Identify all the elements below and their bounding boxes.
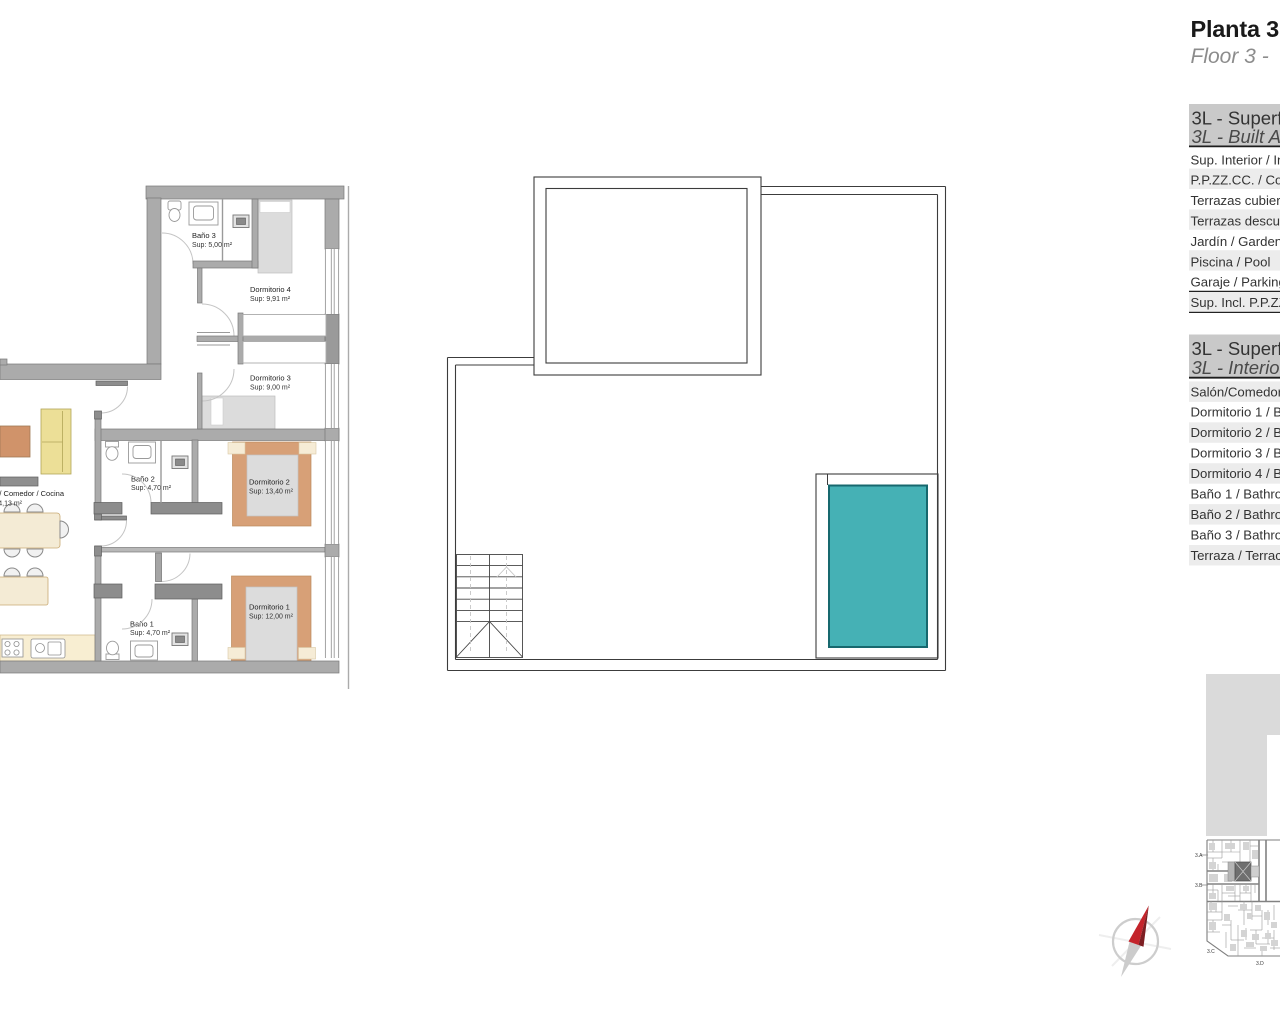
svg-text:Terrazas cubiertas / Covered t: Terrazas cubiertas / Covered terraces (1191, 193, 1280, 208)
svg-text:Baño 1 / Bathroom 1: Baño 1 / Bathroom 1 (1191, 487, 1280, 502)
svg-text:3.C: 3.C (1207, 949, 1215, 955)
svg-text:Baño 2: Baño 2 (131, 475, 155, 484)
svg-text:Sup: 4,70 m²: Sup: 4,70 m² (131, 485, 172, 492)
svg-text:Dormitorio 4 / Bedroom 4: Dormitorio 4 / Bedroom 4 (1191, 466, 1280, 481)
svg-text:Planta 3: Planta 3 (1191, 16, 1280, 42)
svg-text:Sup: 5,00 m²: Sup: 5,00 m² (192, 242, 233, 249)
svg-text:Salón/Comedor/Cocina / Livingr: Salón/Comedor/Cocina / Livingroom (1191, 384, 1280, 399)
svg-text:Sup: 9,00 m²: Sup: 9,00 m² (250, 385, 291, 392)
svg-text:Sup: 9,91 m²: Sup: 9,91 m² (250, 296, 291, 303)
svg-text:Sup: 4,70 m²: Sup: 4,70 m² (130, 630, 171, 637)
svg-text:Baño 3: Baño 3 (192, 231, 216, 240)
svg-text:Dormitorio 3 / Bedroom 3: Dormitorio 3 / Bedroom 3 (1191, 446, 1280, 461)
svg-text:Sup: 24,13 m²: Sup: 24,13 m² (0, 501, 23, 508)
svg-text:Floor 3 -: Floor 3 - (1191, 45, 1269, 68)
svg-text:Sup. Interior / Interior area: Sup. Interior / Interior area (1191, 152, 1280, 167)
svg-text:Dormitorio 2: Dormitorio 2 (249, 478, 290, 487)
svg-text:Sup: 12,00 m²: Sup: 12,00 m² (249, 614, 294, 621)
svg-text:Dormitorio 1 / Bedroom 1: Dormitorio 1 / Bedroom 1 (1191, 405, 1280, 420)
svg-text:Salón / Comedor / Cocina: Salón / Comedor / Cocina (0, 489, 65, 498)
svg-text:Jardín / Garden: Jardín / Garden (1191, 234, 1280, 249)
svg-text:3L - Interior Area: 3L - Interior Area (1192, 357, 1280, 378)
svg-text:Sup: 13,40 m²: Sup: 13,40 m² (249, 489, 294, 496)
svg-text:P.P.ZZ.CC. / Common zones: P.P.ZZ.CC. / Common zones (1191, 173, 1280, 188)
svg-text:Terrazas descubiertas / Uncove: Terrazas descubiertas / Uncovered terrac… (1191, 214, 1280, 229)
svg-text:Baño 3 / Bathroom 3: Baño 3 / Bathroom 3 (1191, 527, 1280, 542)
svg-text:Dormitorio 1: Dormitorio 1 (249, 603, 290, 612)
svg-text:3.A: 3.A (1195, 853, 1203, 859)
svg-text:3L - Built Area: 3L - Built Area (1192, 126, 1280, 147)
svg-text:Dormitorio 2 / Bedroom 2: Dormitorio 2 / Bedroom 2 (1191, 425, 1280, 440)
svg-text:3.D: 3.D (1256, 961, 1264, 967)
svg-text:Dormitorio 4: Dormitorio 4 (250, 285, 291, 294)
svg-text:Dormitorio 3: Dormitorio 3 (250, 374, 291, 383)
svg-text:Sup. Incl. P.P.ZZ.CC. / Area I: Sup. Incl. P.P.ZZ.CC. / Area Incl. Commo… (1191, 295, 1280, 310)
svg-text:3.B: 3.B (1195, 883, 1203, 889)
svg-text:Piscina / Pool: Piscina / Pool (1191, 254, 1271, 269)
svg-text:Terraza / Terrace: Terraza / Terrace (1191, 548, 1280, 563)
svg-text:3L - Superficie Útil: 3L - Superficie Útil (1192, 338, 1280, 359)
svg-text:Garaje / Parking: Garaje / Parking (1191, 275, 1280, 290)
svg-text:Baño 2 / Bathroom 2: Baño 2 / Bathroom 2 (1191, 507, 1280, 522)
